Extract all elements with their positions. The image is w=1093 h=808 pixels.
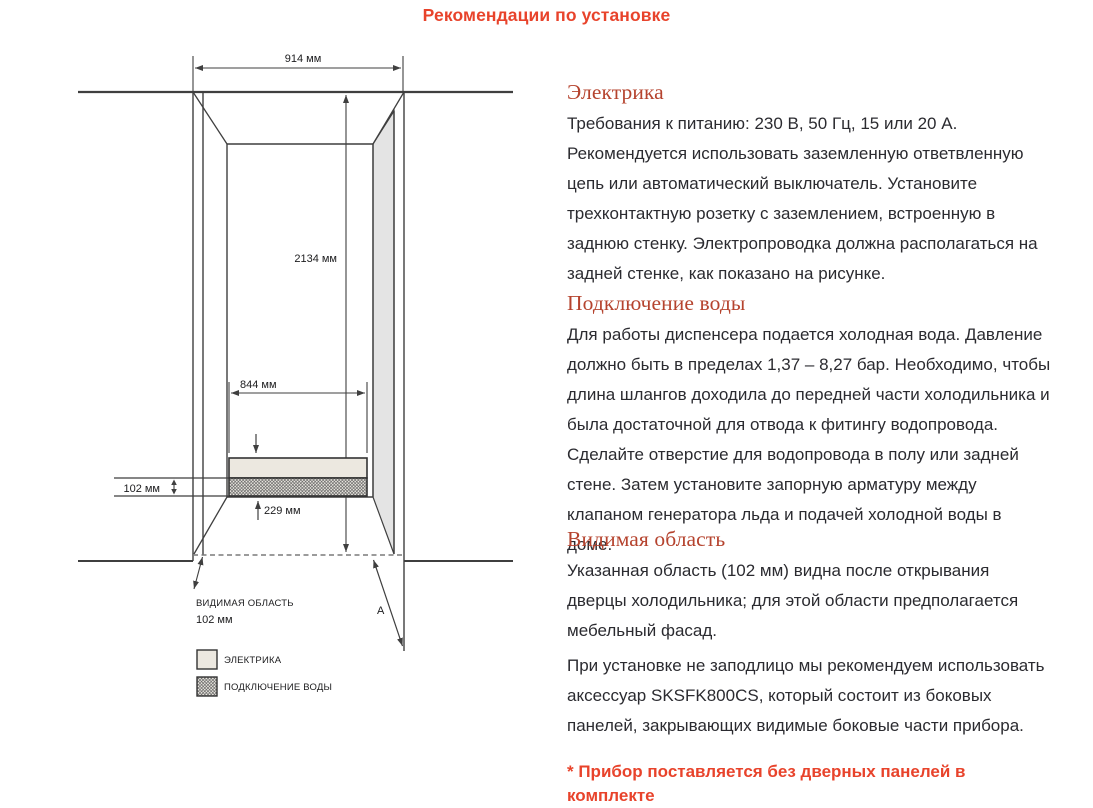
paragraph-water-connection: Для работы диспенсера подается холодная … (567, 320, 1051, 560)
inner-width-label: 844 мм (240, 379, 277, 391)
door-dimension-label: A (377, 605, 385, 617)
paragraph-accessory-note: При установке не заподлицо мы рекомендуе… (567, 651, 1051, 741)
side-panel-visible-area (373, 111, 394, 554)
electrical-zone (229, 458, 367, 478)
dimension-visible-depth: 102 мм (114, 478, 229, 496)
installation-diagram: 914 мм 2134 мм 844 мм (0, 0, 540, 720)
legend-swatch-water (197, 677, 217, 696)
bottom-offset-label: 229 мм (264, 505, 301, 517)
niche-height-label: 2134 мм (294, 253, 337, 265)
niche-width-label: 914 мм (285, 53, 322, 65)
legend-label-electrical: ЭЛЕКТРИКА (224, 655, 282, 666)
visible-area-annotation: ВИДИМАЯ ОБЛАСТЬ 102 мм (194, 557, 294, 626)
water-connection-zone (229, 478, 367, 496)
dimension-niche-width: 914 мм (193, 53, 403, 91)
back-wall (227, 144, 373, 497)
legend-label-water: ПОДКЛЮЧЕНИЕ ВОДЫ (224, 682, 332, 693)
paragraph-visible-area: Указанная область (102 мм) видна после о… (567, 556, 1051, 646)
visible-area-label-line1: ВИДИМАЯ ОБЛАСТЬ (196, 598, 294, 609)
installation-guide-page: { "page": { "title": "Рекомендации по ус… (0, 0, 1093, 788)
visible-area-label-line2: 102 мм (196, 614, 233, 626)
heading-water-connection: Подключение воды (567, 291, 745, 316)
heading-visible-area: Видимая область (567, 527, 725, 552)
diagram-legend: ЭЛЕКТРИКА ПОДКЛЮЧЕНИЕ ВОДЫ (197, 650, 332, 696)
heading-electrical: Электрика (567, 80, 664, 105)
text-column: Электрика Требования к питанию: 230 В, 5… (567, 0, 1051, 788)
door-dimension-annotation: A (374, 560, 403, 646)
visible-depth-label: 102 мм (123, 483, 160, 495)
legend-swatch-electrical (197, 650, 217, 669)
paragraph-electrical: Требования к питанию: 230 В, 50 Гц, 15 и… (567, 109, 1051, 289)
footnote-no-door-panels: * Прибор поставляется без дверных панеле… (567, 760, 1051, 808)
dimension-bottom-offset: 229 мм (258, 501, 301, 520)
